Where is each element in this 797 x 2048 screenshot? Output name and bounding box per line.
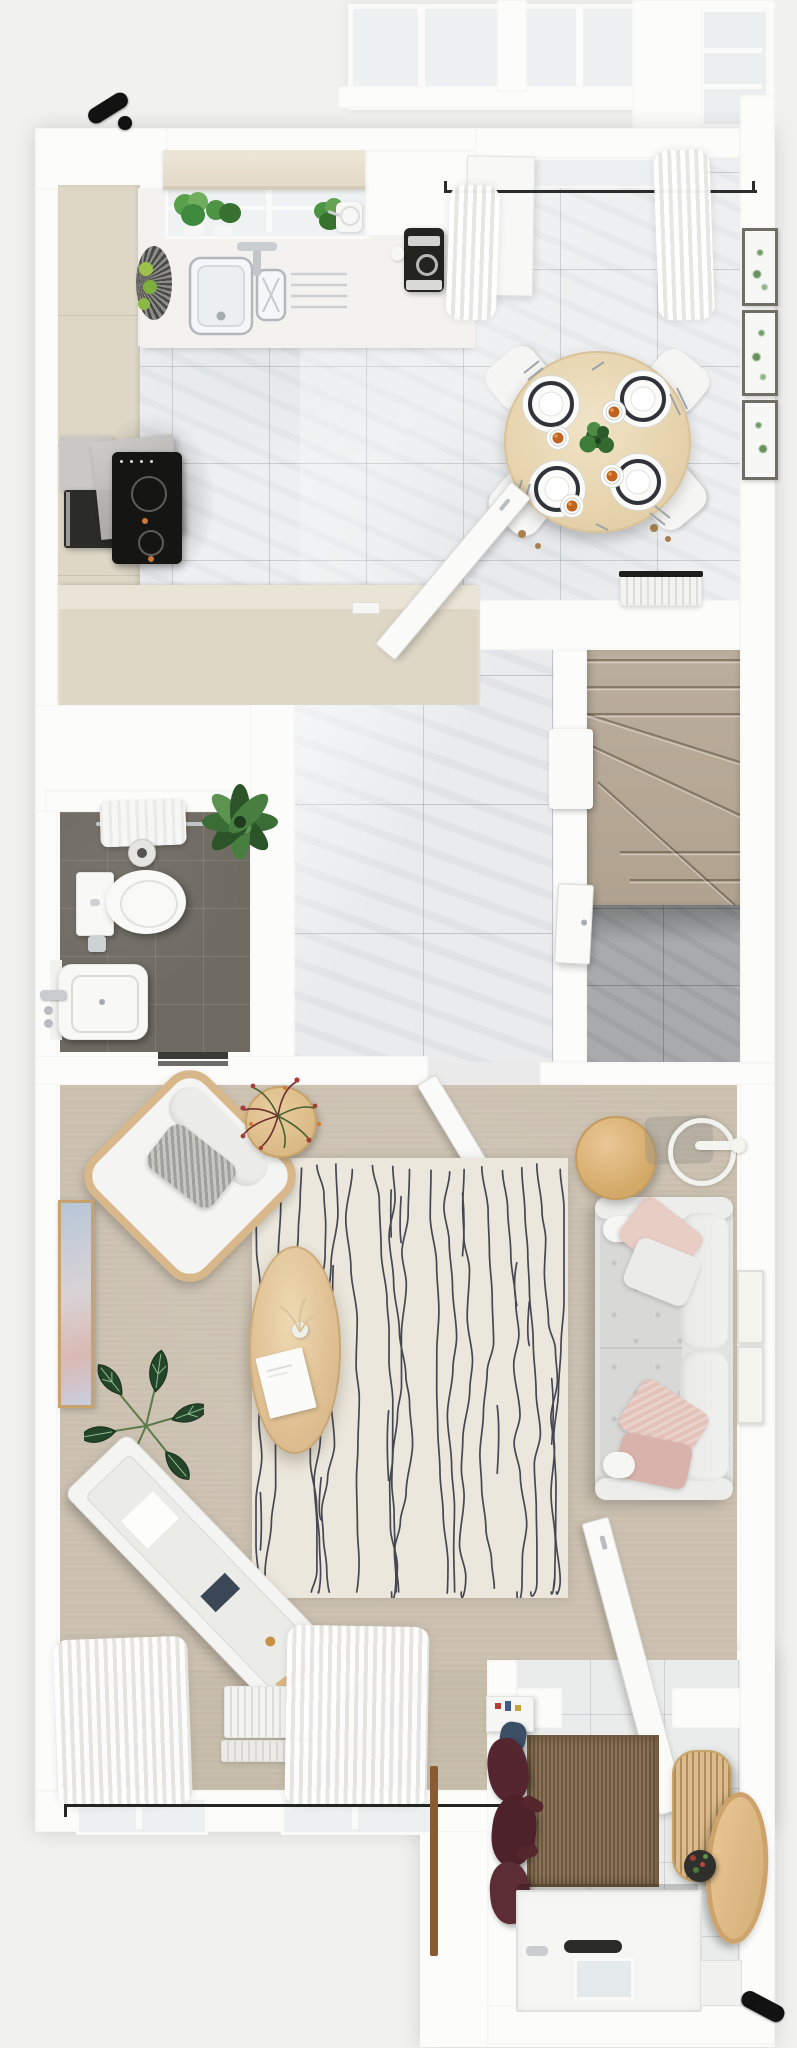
roman-shade: [163, 150, 365, 190]
bathroom-door-threshold-inner: [158, 1061, 228, 1066]
basin-faucet: [40, 990, 66, 1000]
front-door-handle: [526, 1946, 548, 1956]
understairs-closet-door: [554, 883, 594, 965]
door-handle-top-base: [118, 116, 132, 130]
doormat: [700, 1960, 742, 2006]
apple: [143, 280, 157, 294]
porch-beam: [338, 86, 650, 108]
jute-runner: [527, 1735, 659, 1887]
bathroom-potted-plant: [202, 778, 278, 864]
door-handle: [581, 919, 587, 925]
curtain-rod-living: [64, 1804, 512, 1807]
sofa-bolster: [602, 1451, 635, 1479]
hob-ring: [138, 530, 164, 556]
console-item-red: [495, 1703, 501, 1709]
basin-tap-handle: [44, 1019, 53, 1028]
radiator-top-rail: [619, 571, 703, 577]
round-side-table: [575, 1116, 657, 1200]
hallway-floor: [295, 650, 553, 1062]
hob-dot: [120, 460, 123, 463]
apple: [138, 298, 150, 310]
sofa-seat-seam: [600, 1347, 682, 1349]
sheer-curtain-living-left: [53, 1636, 193, 1809]
hob-dot-amber: [148, 556, 154, 562]
patio-glass: [532, 158, 666, 188]
toilet-roll-holder: [88, 936, 106, 952]
induction-hob: [112, 452, 182, 564]
oven-handle: [66, 492, 70, 546]
herb-plant: [204, 198, 244, 238]
coffee-machine-dial: [416, 254, 438, 276]
toilet-bowl: [106, 870, 186, 934]
relief-wall-frame: [737, 1346, 764, 1424]
door-glass-pane: [574, 1958, 634, 2000]
console-item-gold: [515, 1705, 521, 1711]
kitchen-sink: [185, 240, 355, 342]
flush-button: [90, 899, 100, 906]
dining-place-settings: [500, 340, 700, 552]
botanical-wall-frame: [742, 310, 778, 396]
door-handle-bottom-base: [742, 1992, 755, 2005]
relief-wall-frame: [737, 1270, 764, 1344]
ring-floor-lamp: [668, 1118, 736, 1186]
espresso-cup: [391, 246, 404, 261]
conservatory-mullion: [576, 6, 583, 98]
door-handle: [499, 498, 511, 511]
hand-basin: [58, 964, 148, 1040]
radiator-dining: [620, 574, 702, 606]
wall-entry-top-right-stub: [672, 1688, 740, 1728]
curtain-rod-bracket: [444, 181, 447, 193]
front-door: [516, 1890, 702, 2012]
stair-newel-post: [549, 729, 593, 809]
hob-dot-amber: [142, 518, 148, 524]
botanical-wall-frame: [742, 228, 778, 306]
flower-arrangement: [223, 1066, 333, 1162]
console-item-blue: [505, 1701, 511, 1711]
apple: [139, 262, 153, 276]
wall-top-left-block: [35, 128, 168, 190]
wall-living-top-right: [540, 1062, 775, 1085]
porch-glass-mullion: [700, 48, 762, 53]
stair-treads: [587, 648, 740, 905]
light-switch: [352, 602, 380, 614]
sheer-curtain-dining-right: [653, 149, 715, 321]
hall-living-threshold: [428, 1062, 540, 1085]
conservatory-mullion: [418, 6, 425, 98]
watering-can: [336, 202, 362, 232]
understairs-storage-floor: [587, 905, 740, 1062]
entry-plant-bowl: [684, 1850, 716, 1882]
basin-tap-handle: [44, 1006, 53, 1015]
door-handle: [599, 1535, 607, 1550]
waste-bin: [128, 839, 156, 867]
coffee-machine-tray: [406, 280, 442, 290]
botanical-wall-frame: [742, 400, 778, 480]
staircase: [587, 648, 740, 905]
sheer-curtain-living-right: [284, 1625, 429, 1807]
coffee-machine: [404, 228, 444, 292]
curtain-rod-bracket: [64, 1804, 67, 1817]
sheer-curtain-dining-left: [446, 184, 501, 321]
curtain-rod-bracket: [752, 181, 755, 193]
coffee-machine-top: [408, 236, 440, 246]
hob-ring: [131, 476, 167, 512]
open-exterior-door-edge: [430, 1766, 438, 1956]
living-wall-art: [58, 1200, 94, 1408]
floor-plan-page: { "scene": { "kind": "top-down-3d-floor-…: [0, 0, 797, 2048]
bathroom-door-threshold: [158, 1052, 228, 1059]
letterbox: [564, 1940, 622, 1953]
lamp-base: [731, 1138, 746, 1153]
pampas-sprigs: [268, 1282, 318, 1338]
centerpiece-plant: [580, 422, 615, 453]
porch-glass-mullion: [700, 84, 762, 89]
wall-hall-divider: [553, 650, 587, 1062]
porch-post: [497, 0, 527, 92]
